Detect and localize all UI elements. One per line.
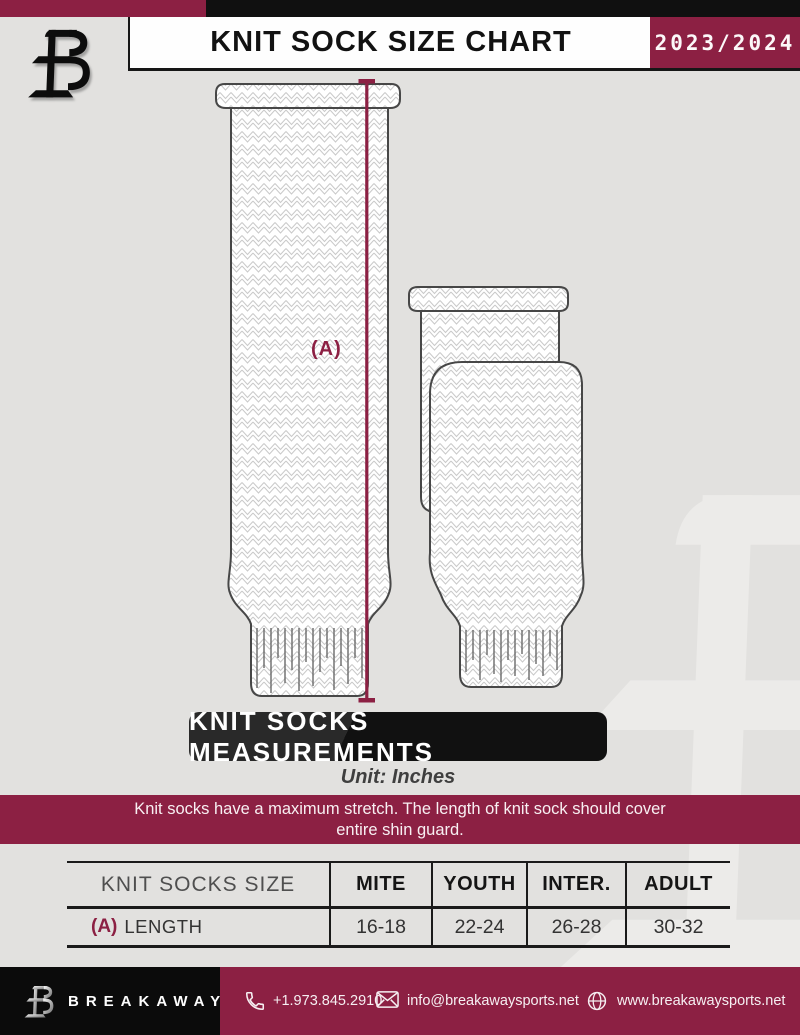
table-header-mite: MITE (329, 863, 431, 906)
table-header-size: KNIT SOCKS SIZE (67, 863, 329, 906)
measurement-label: (A) (311, 338, 342, 361)
stretch-note-line1: Knit socks have a maximum stretch. The l… (134, 799, 666, 820)
sock-medium-body (421, 311, 559, 512)
table-header-adult: ADULT (625, 863, 730, 906)
measurements-banner-text: KNIT SOCKS MEASUREMENTS (189, 706, 607, 768)
season-badge: 2023/2024 (650, 17, 800, 71)
row-label-text: LENGTH (124, 916, 202, 938)
phone-icon (244, 990, 266, 1012)
sock-front-fringe (466, 630, 557, 682)
page-title: KNIT SOCK SIZE CHART (210, 26, 572, 59)
measurement-line (359, 79, 376, 703)
stretch-note-band: Knit socks have a maximum stretch. The l… (0, 795, 800, 844)
table-header-inter: INTER. (526, 863, 625, 906)
season-label: 2023/2024 (655, 31, 796, 55)
size-table: KNIT SOCKS SIZE MITE YOUTH INTER. ADULT … (67, 861, 730, 948)
measurements-banner: KNIT SOCKS MEASUREMENTS (189, 712, 607, 761)
footer-brand-name: BREAKAWAY (68, 967, 227, 1035)
table-row-length: (A) LENGTH 16-18 22-24 26-28 30-32 (67, 909, 730, 945)
title-box: KNIT SOCK SIZE CHART (128, 17, 652, 71)
sock-large-cuff (216, 84, 400, 108)
phone-number[interactable]: +1.973.845.2910 (273, 992, 382, 1010)
footer-b-logo (24, 984, 54, 1018)
table-header-row: KNIT SOCKS SIZE MITE YOUTH INTER. ADULT (67, 863, 730, 909)
header-top-strip (0, 0, 800, 17)
sock-front-body (430, 362, 584, 687)
sock-medium-cuff (409, 287, 568, 311)
length-inter: 26-28 (526, 909, 625, 945)
email-icon (376, 990, 399, 1009)
sock-large-body (228, 108, 390, 696)
footer-contact-block: +1.973.845.2910 info@breakawaysports.net… (220, 967, 800, 1035)
website-url[interactable]: www.breakawaysports.net (617, 992, 785, 1010)
header-strip-black (206, 0, 800, 17)
row-label-key: (A) (91, 916, 117, 938)
sock-large-fringe (257, 628, 362, 693)
footer: BREAKAWAY +1.973.845.2910 info@breakaway… (0, 967, 800, 1035)
row-label-cell: (A) LENGTH (67, 909, 329, 945)
email-address[interactable]: info@breakawaysports.net (407, 992, 579, 1010)
length-youth: 22-24 (431, 909, 526, 945)
unit-note: Unit: Inches (198, 766, 598, 789)
sock-diagram (0, 0, 800, 710)
table-header-youth: YOUTH (431, 863, 526, 906)
length-adult: 30-32 (625, 909, 730, 945)
sock-size-chart-page: KNIT SOCK SIZE CHART 2023/2024 (0, 0, 800, 1035)
globe-icon (586, 990, 608, 1012)
footer-brand-block: BREAKAWAY (0, 967, 220, 1035)
brand-b-logo (26, 26, 92, 98)
length-mite: 16-18 (329, 909, 431, 945)
header-strip-maroon (0, 0, 206, 17)
stretch-note-line2: entire shin guard. (336, 820, 464, 841)
